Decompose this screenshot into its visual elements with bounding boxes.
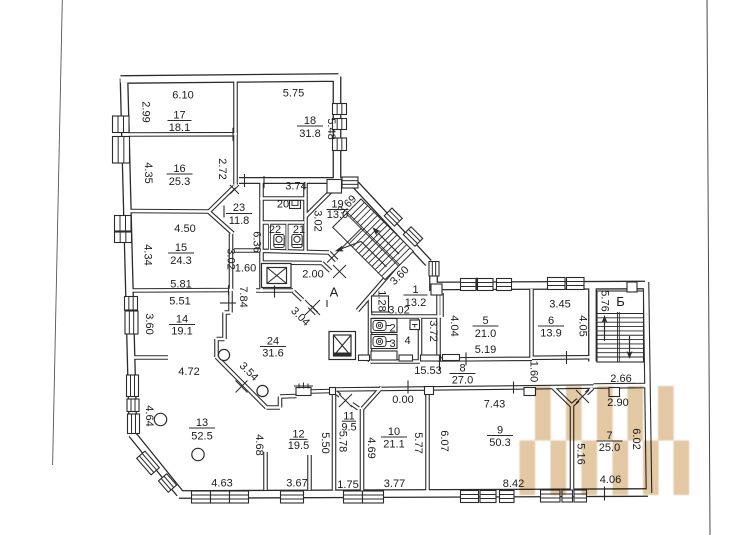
svg-text:4.64: 4.64 bbox=[143, 405, 155, 426]
svg-text:8: 8 bbox=[459, 363, 465, 375]
svg-text:5.50: 5.50 bbox=[319, 432, 331, 453]
svg-text:4.72: 4.72 bbox=[178, 366, 199, 378]
svg-text:10: 10 bbox=[388, 426, 400, 438]
svg-text:5.51: 5.51 bbox=[169, 296, 190, 308]
svg-text:9: 9 bbox=[497, 425, 503, 437]
svg-text:3.77: 3.77 bbox=[384, 478, 405, 490]
svg-text:0.00: 0.00 bbox=[392, 394, 413, 406]
svg-text:2.99: 2.99 bbox=[140, 101, 152, 122]
svg-text:4.63: 4.63 bbox=[211, 478, 232, 490]
svg-text:3.02: 3.02 bbox=[312, 210, 324, 231]
svg-text:4.04: 4.04 bbox=[448, 315, 460, 336]
svg-text:4.69: 4.69 bbox=[365, 437, 377, 458]
svg-text:15: 15 bbox=[175, 242, 187, 254]
svg-text:5.19: 5.19 bbox=[475, 344, 496, 356]
svg-text:21.1: 21.1 bbox=[383, 439, 404, 451]
svg-text:4.35: 4.35 bbox=[142, 162, 154, 183]
svg-text:24: 24 bbox=[267, 336, 279, 348]
svg-text:17: 17 bbox=[173, 110, 185, 122]
svg-text:2: 2 bbox=[389, 323, 395, 335]
svg-text:1: 1 bbox=[412, 284, 418, 296]
svg-text:18: 18 bbox=[304, 115, 316, 127]
svg-text:7.43: 7.43 bbox=[484, 399, 505, 411]
svg-text:5.48: 5.48 bbox=[325, 118, 337, 139]
svg-text:21: 21 bbox=[293, 224, 305, 236]
svg-text:3.72: 3.72 bbox=[427, 320, 439, 341]
svg-text:2.72: 2.72 bbox=[216, 158, 228, 179]
svg-text:18.1: 18.1 bbox=[169, 122, 190, 134]
svg-text:6.36: 6.36 bbox=[251, 231, 263, 252]
svg-text:3.74: 3.74 bbox=[285, 181, 306, 193]
svg-text:20: 20 bbox=[277, 199, 289, 211]
svg-text:13.9: 13.9 bbox=[540, 328, 561, 340]
svg-text:7.84: 7.84 bbox=[237, 286, 249, 307]
svg-text:52.5: 52.5 bbox=[191, 431, 212, 443]
svg-text:13.2: 13.2 bbox=[405, 297, 426, 309]
svg-text:16: 16 bbox=[173, 163, 185, 175]
svg-text:5: 5 bbox=[482, 315, 488, 327]
svg-text:3.67: 3.67 bbox=[286, 478, 307, 490]
svg-text:2.66: 2.66 bbox=[610, 373, 631, 385]
svg-text:5.75: 5.75 bbox=[283, 88, 304, 100]
svg-text:4.50: 4.50 bbox=[174, 223, 195, 235]
svg-text:27.0: 27.0 bbox=[452, 375, 473, 387]
svg-text:5.76: 5.76 bbox=[599, 290, 611, 311]
svg-text:3.60: 3.60 bbox=[143, 313, 155, 334]
svg-text:25.3: 25.3 bbox=[169, 176, 190, 188]
svg-text:13.0: 13.0 bbox=[327, 209, 348, 221]
svg-text:1.28: 1.28 bbox=[376, 290, 388, 311]
svg-text:23: 23 bbox=[233, 202, 245, 214]
svg-text:5.78: 5.78 bbox=[337, 431, 349, 452]
svg-text:5.81: 5.81 bbox=[170, 279, 191, 291]
svg-text:6.07: 6.07 bbox=[438, 430, 450, 451]
svg-text:Б: Б bbox=[616, 294, 625, 309]
svg-text:6: 6 bbox=[548, 315, 554, 327]
svg-text:9.5: 9.5 bbox=[341, 422, 356, 434]
svg-text:15.53: 15.53 bbox=[414, 365, 442, 377]
svg-text:31.6: 31.6 bbox=[262, 348, 283, 360]
svg-text:19.1: 19.1 bbox=[171, 326, 192, 338]
svg-text:31.8: 31.8 bbox=[299, 128, 320, 140]
svg-text:4: 4 bbox=[404, 335, 410, 347]
svg-text:1.75: 1.75 bbox=[337, 479, 358, 491]
svg-text:3: 3 bbox=[389, 338, 395, 350]
svg-text:11.8: 11.8 bbox=[229, 215, 250, 227]
svg-text:1.60: 1.60 bbox=[528, 361, 540, 382]
svg-text:1.60: 1.60 bbox=[235, 263, 256, 275]
svg-text:12: 12 bbox=[292, 429, 304, 441]
svg-text:14: 14 bbox=[176, 314, 188, 326]
svg-text:50.3: 50.3 bbox=[489, 437, 510, 449]
svg-text:21.0: 21.0 bbox=[475, 328, 496, 340]
svg-text:3.45: 3.45 bbox=[549, 299, 570, 311]
svg-text:4.68: 4.68 bbox=[253, 434, 265, 455]
svg-text:6.10: 6.10 bbox=[172, 90, 193, 102]
svg-text:А: А bbox=[330, 285, 339, 300]
svg-text:13: 13 bbox=[196, 417, 208, 429]
svg-text:5.77: 5.77 bbox=[412, 432, 424, 453]
svg-text:4.34: 4.34 bbox=[142, 244, 154, 265]
svg-text:4.05: 4.05 bbox=[577, 315, 589, 336]
svg-text:22: 22 bbox=[269, 224, 281, 236]
svg-text:19.5: 19.5 bbox=[288, 440, 309, 452]
svg-text:2.00: 2.00 bbox=[302, 269, 323, 281]
svg-text:24.3: 24.3 bbox=[170, 255, 191, 267]
